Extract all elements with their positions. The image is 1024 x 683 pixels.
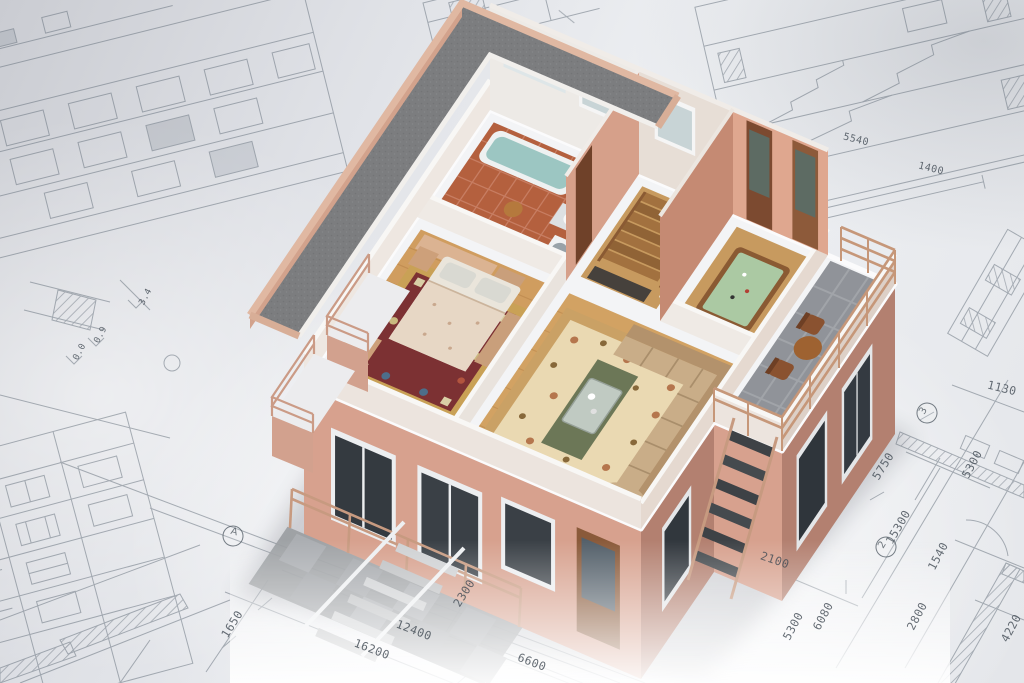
architectural-visualization: 1650 16200 12400 2300 6600 2100 5300 608… <box>0 0 1024 683</box>
ground-glow <box>230 540 950 683</box>
blueprint-fragment-right <box>948 229 1024 356</box>
blueprint-fragment-left <box>0 280 180 438</box>
scene-drawing <box>0 0 1024 683</box>
blueprint-elevation-topleft <box>0 0 348 258</box>
